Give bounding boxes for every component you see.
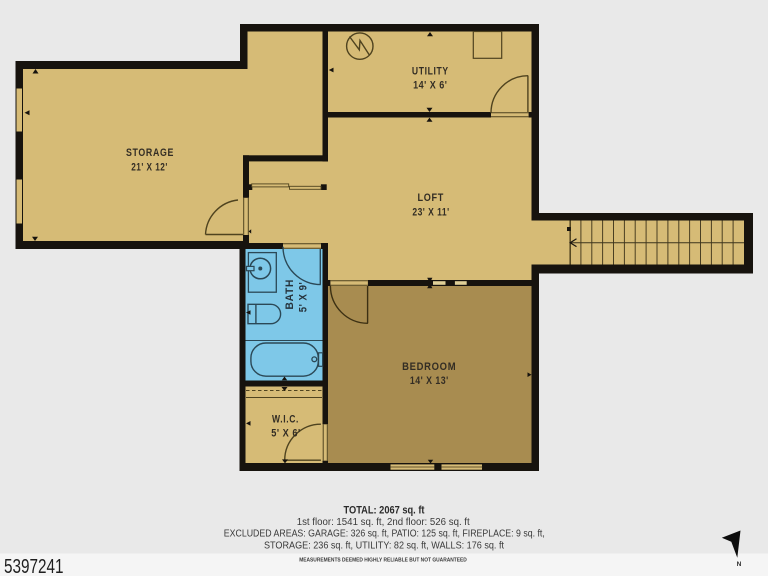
svg-text:BEDROOM: BEDROOM (402, 361, 456, 373)
svg-text:TOTAL: 2067 sq. ft: TOTAL: 2067 sq. ft (344, 504, 425, 516)
svg-text:N: N (737, 561, 742, 568)
svg-text:23' X 11': 23' X 11' (412, 207, 449, 219)
svg-text:1st floor: 1541 sq. ft, 2nd fl: 1st floor: 1541 sq. ft, 2nd floor: 526 s… (297, 517, 470, 528)
svg-text:5397241: 5397241 (4, 555, 64, 576)
svg-text:W.I.C.: W.I.C. (272, 414, 299, 426)
svg-text:UTILITY: UTILITY (412, 65, 449, 77)
svg-text:14' X 6': 14' X 6' (413, 80, 447, 92)
svg-text:14' X 13': 14' X 13' (410, 375, 449, 387)
svg-text:BATH: BATH (284, 279, 296, 310)
svg-text:LOFT: LOFT (418, 192, 445, 204)
svg-text:MEASUREMENTS DEEMED HIGHLY REL: MEASUREMENTS DEEMED HIGHLY RELIABLE BUT … (299, 557, 467, 563)
svg-text:EXCLUDED AREAS: GARAGE: 326 sq: EXCLUDED AREAS: GARAGE: 326 sq. ft, PATI… (224, 529, 545, 540)
svg-text:STORAGE: STORAGE (126, 147, 174, 159)
svg-text:STORAGE: 236 sq. ft, UTILITY:: STORAGE: 236 sq. ft, UTILITY: 82 sq. ft,… (264, 540, 504, 551)
svg-text:5' X 9': 5' X 9' (298, 282, 310, 313)
svg-text:21' X 12': 21' X 12' (131, 162, 168, 174)
svg-text:5' X 6': 5' X 6' (271, 427, 301, 439)
